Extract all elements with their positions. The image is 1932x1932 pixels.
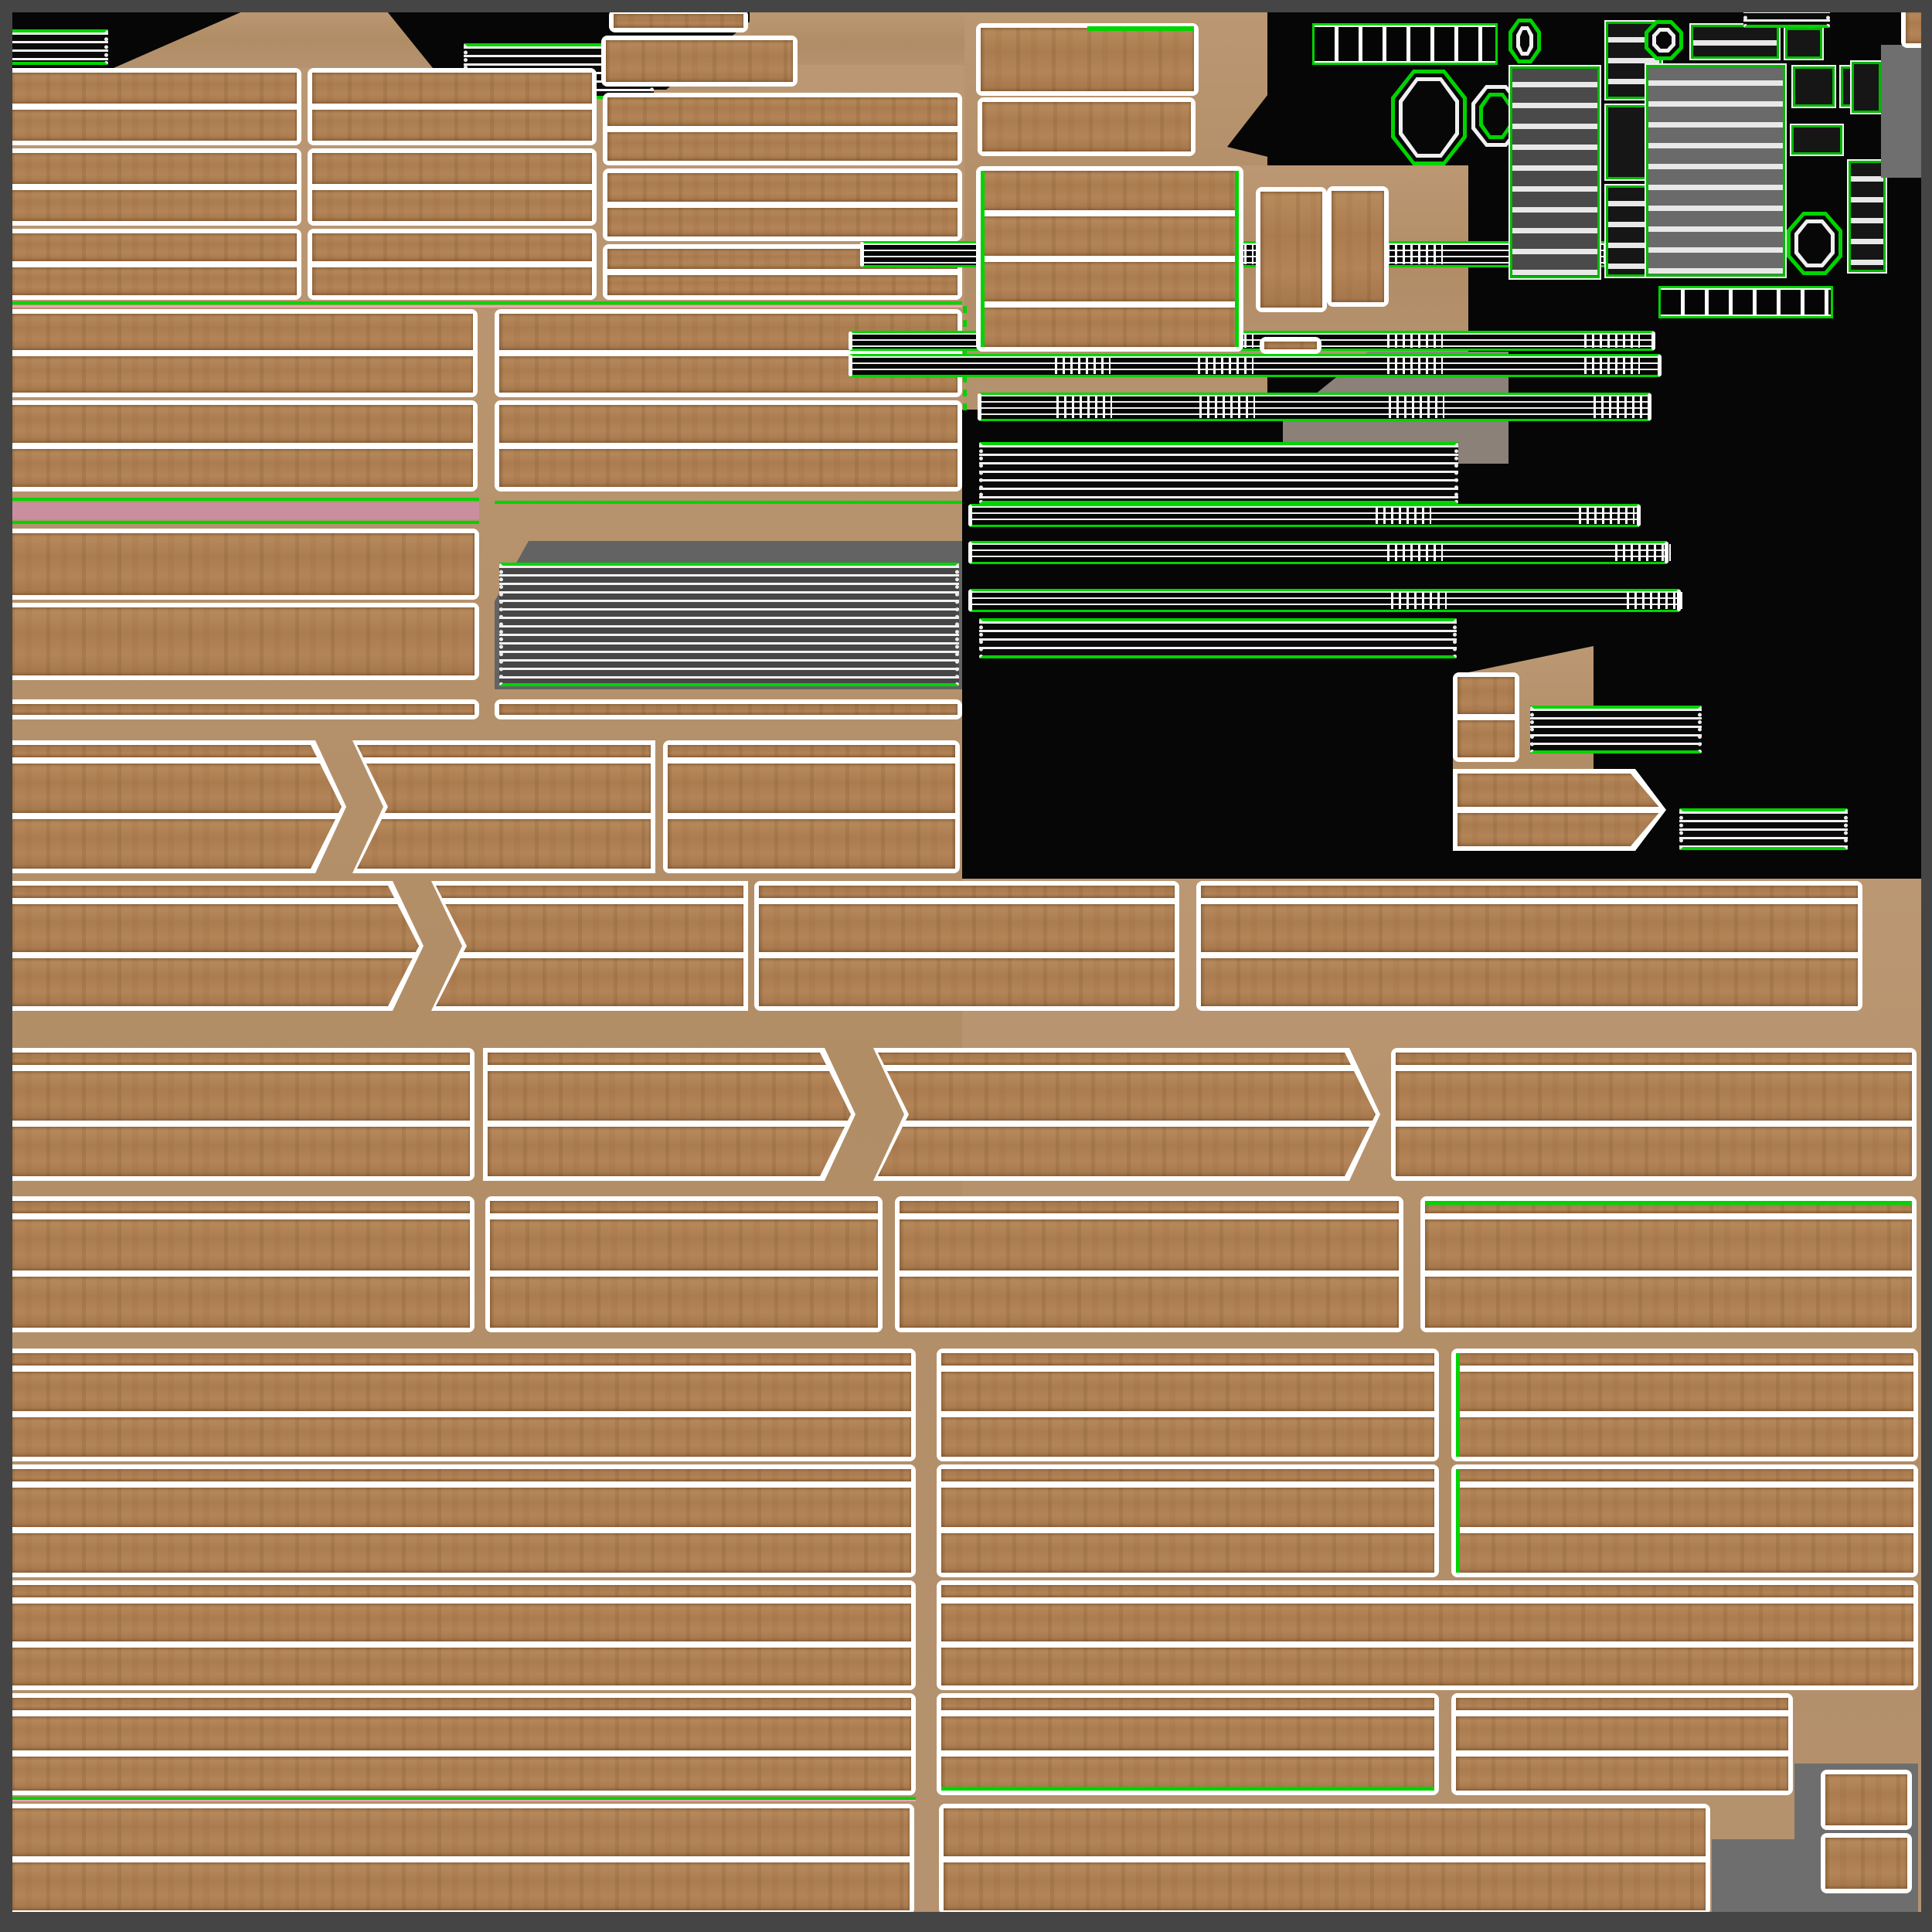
railing-bar-7-baluster-ticks <box>1391 592 1447 609</box>
plank-mid-l4 <box>6 603 479 680</box>
corner-plank-2 <box>1821 1833 1912 1893</box>
band-a-left-plank-row <box>11 1417 911 1457</box>
chevron-b1-left <box>6 740 346 873</box>
vertical-plank-2-plank-row <box>1332 191 1384 302</box>
gray-corner-b <box>1712 1839 1797 1912</box>
plank-top-small-inner <box>614 14 743 28</box>
vertical-plank-1-inner <box>1260 192 1322 308</box>
band-d-mid-edge-strip <box>941 1698 1434 1710</box>
chevron-b1-right-plank-row <box>668 764 955 813</box>
chevron-b4-far-plank-row <box>1425 1277 1912 1328</box>
band-d-left <box>6 1693 916 1795</box>
railing-bar-4-baluster-ticks <box>1056 396 1112 418</box>
band-b-right-edge-strip <box>1456 1469 1913 1481</box>
plank-col2-r2-plank-row <box>312 153 592 184</box>
chevron-b2-mid-inner <box>436 886 743 1006</box>
plank-col2-r3-plank-row <box>312 233 592 261</box>
plank-stub-1-plank-row <box>1458 720 1515 757</box>
chevron-b4-far <box>1420 1196 1917 1332</box>
plank-stub-2 <box>1453 769 1666 851</box>
band-a-mid-plank-row <box>941 1372 1434 1411</box>
plank-mid-r2-inner <box>499 405 957 487</box>
framed-plank-2-inner <box>982 102 1191 151</box>
gear-wireframe-1-ring-1 <box>1512 22 1537 60</box>
plank-stub-1-plank-row <box>1458 677 1515 714</box>
plank-col3-r1 <box>603 93 962 165</box>
railing-bar-6 <box>970 541 1667 564</box>
chevron-b2-left-plank-row <box>11 904 419 952</box>
frame-top <box>0 0 1932 12</box>
plank-stub-2-plank-row <box>1458 774 1662 807</box>
chevron-b4-right <box>895 1196 1403 1332</box>
band-c-wide-edge-strip <box>941 1585 1913 1597</box>
plank-col1-r1-plank-row <box>11 73 297 104</box>
plank-col2-r1-inner <box>312 73 592 141</box>
band-a-right-edge-strip <box>1456 1353 1913 1366</box>
plank-col3-r3-plank-row <box>607 275 957 295</box>
railing-bar-3-baluster-ticks <box>1198 357 1253 374</box>
strip-right-inner <box>499 704 957 715</box>
plank-mid-l2 <box>6 400 478 492</box>
chevron-b1-mid-plank-row <box>357 764 651 813</box>
chevron-b4-right-edge-strip <box>900 1201 1399 1213</box>
strip-right-plank-row <box>499 704 957 715</box>
chevron-b3-left-edge-strip <box>11 1053 470 1065</box>
band-e-left <box>6 1804 914 1915</box>
railing-bar-5-baluster-ticks <box>1376 507 1431 524</box>
chevron-b4-mid-plank-row <box>490 1219 878 1270</box>
plank-top-wide <box>601 36 798 87</box>
four-plank-block <box>976 166 1243 352</box>
striped-island-h <box>1679 808 1848 850</box>
framed-plank-2 <box>978 97 1196 156</box>
plank-col2-r3-inner <box>312 233 592 295</box>
plank-col1-r3-inner <box>11 233 297 295</box>
band-c-left-edge-strip <box>11 1585 911 1597</box>
plank-mid-l1-plank-row <box>11 356 473 393</box>
band-a-right-plank-row <box>1456 1372 1913 1411</box>
chevron-b4-left-plank-row <box>11 1219 470 1270</box>
chevron-b2-far <box>1196 881 1862 1011</box>
four-plank-block-plank-row <box>981 262 1239 301</box>
plank-col2-r2-inner <box>312 153 592 221</box>
plank-col3-r2-plank-row <box>607 208 957 236</box>
framed-plank-1-green-edge-topright <box>1087 26 1194 31</box>
plank-col3-r1-plank-row <box>607 132 957 161</box>
railing-bar-2-baluster-ticks <box>1584 334 1640 348</box>
chevron-b1-left-edge-strip <box>11 745 342 757</box>
gray-patch-topright <box>1881 45 1921 178</box>
chevron-b1-mid-plank-row <box>357 819 651 869</box>
chevron-b4-mid-inner <box>490 1201 878 1328</box>
small-bar-inner <box>1264 342 1317 349</box>
small-bar-plank-row <box>1264 342 1317 349</box>
plank-col1-r1-plank-row <box>11 110 297 141</box>
band-d-right-edge-strip <box>1456 1698 1788 1710</box>
plank-mid-l3-plank-row <box>11 533 474 595</box>
chevron-b3-mid <box>483 1048 855 1181</box>
band-c-left-plank-row <box>11 1604 911 1641</box>
railing-bar-4-baluster-ticks <box>1594 396 1649 418</box>
gear-wireframe-2-ring-3 <box>1656 32 1672 49</box>
chevron-b1-mid-edge-strip <box>357 745 651 757</box>
chevron-b1-right-inner <box>668 745 955 869</box>
chevron-b2-left-plank-row <box>11 958 419 1006</box>
band-c-left <box>6 1580 916 1690</box>
railing-bar-4-baluster-ticks <box>1199 396 1255 418</box>
chevron-b3-right-plank-row <box>878 1127 1376 1176</box>
band-c-wide <box>937 1580 1918 1690</box>
plank-mid-r1-inner <box>499 314 957 393</box>
railing-bar-5 <box>970 504 1639 527</box>
octagon-wireframe-large <box>1391 70 1467 165</box>
plank-col1-r1-inner <box>11 73 297 141</box>
band-a-left-inner <box>11 1353 911 1457</box>
gear-wireframe-1-ring-3 <box>1520 30 1529 52</box>
texture-atlas-canvas <box>0 0 1932 1932</box>
chevron-b2-mid-edge-strip <box>436 886 743 898</box>
chevron-b4-far-inner <box>1425 1201 1912 1328</box>
band-b-right-plank-row <box>1456 1488 1913 1527</box>
cluster-c2 <box>1790 124 1844 156</box>
band-a-left <box>6 1349 916 1461</box>
plank-mid-r1 <box>495 309 962 397</box>
chevron-b2-far-edge-strip <box>1201 886 1858 898</box>
band-b-mid-edge-strip <box>941 1469 1434 1481</box>
railing-bar-6-baluster-ticks <box>1615 544 1671 561</box>
plank-col1-r1 <box>6 68 301 145</box>
plank-col3-r2-plank-row <box>607 173 957 202</box>
plank-col3-r1-plank-row <box>607 97 957 126</box>
plank-stub-1-inner <box>1458 677 1515 757</box>
chevron-b1-right-plank-row <box>668 819 955 869</box>
gear-wireframe-1 <box>1509 19 1541 63</box>
chevron-b1-left-plank-row <box>11 764 342 813</box>
octagon-wireframe-corner-ring-2 <box>1794 219 1835 267</box>
stack-cluster-1 <box>1509 65 1601 280</box>
chevron-b2-right-plank-row <box>759 958 1175 1006</box>
striped-island-g <box>1530 706 1702 753</box>
band-a-mid-plank-row <box>941 1417 1434 1457</box>
chevron-b2-far-inner <box>1201 886 1858 1006</box>
octagon-wireframe-large-ring-1 <box>1395 73 1463 162</box>
chevron-b4-far-plank-row <box>1425 1219 1912 1270</box>
framed-plank-1-plank-row <box>981 28 1194 91</box>
band-a-right-plank-row <box>1456 1417 1913 1457</box>
chevron-b2-mid <box>431 881 748 1011</box>
chevron-b2-right <box>754 881 1179 1011</box>
band-a-right-inner <box>1456 1353 1913 1457</box>
chevron-b1-mid-inner <box>357 745 651 869</box>
ladder-wireframe-2 <box>1658 286 1833 318</box>
plank-col1-r3 <box>6 229 301 300</box>
railing-bar-3 <box>850 354 1660 377</box>
band-e-right-inner <box>944 1808 1706 1910</box>
railing-bar-4-baluster-ticks <box>1389 396 1444 418</box>
railing-bar-2 <box>850 331 1654 351</box>
chevron-b2-left-inner <box>11 886 419 1006</box>
chevron-b4-mid <box>485 1196 883 1332</box>
octagon-wireframe-large-ring-3 <box>1403 81 1455 154</box>
four-plank-block-plank-row <box>981 216 1239 256</box>
band-b-right-inner <box>1456 1469 1913 1573</box>
octagon-wireframe-small-ring-3 <box>1483 97 1509 135</box>
plank-col2-r2 <box>308 148 597 226</box>
band-b-mid-inner <box>941 1469 1434 1573</box>
chevron-b3-far-inner <box>1396 1053 1912 1176</box>
band-b-left-plank-row <box>11 1488 911 1527</box>
band-d-mid-plank-row <box>941 1757 1434 1791</box>
chevron-b4-mid-edge-strip <box>490 1201 878 1213</box>
band-d-left-inner <box>11 1698 911 1791</box>
strip-right <box>495 699 962 719</box>
chevron-b2-right-edge-strip <box>759 886 1175 898</box>
plank-top-small-plank-row <box>614 14 743 28</box>
chevron-b3-left-plank-row <box>11 1071 470 1121</box>
vertical-plank-2-inner <box>1332 191 1384 302</box>
band-a-left-plank-row <box>11 1372 911 1411</box>
chevron-b4-right-inner <box>900 1201 1399 1328</box>
band-c-wide-plank-row <box>941 1604 1913 1641</box>
chevron-b4-left <box>6 1196 474 1332</box>
plank-mid-l2-plank-row <box>11 405 473 443</box>
railing-bar-4 <box>979 393 1650 421</box>
plank-mid-l3 <box>6 529 479 600</box>
striped-island-a <box>6 29 108 65</box>
plank-top-wide-plank-row <box>606 40 793 82</box>
chevron-b4-left-inner <box>11 1201 470 1328</box>
chevron-b3-mid-plank-row <box>488 1071 851 1121</box>
green-seam <box>6 521 479 524</box>
gear-wireframe-2 <box>1645 20 1683 60</box>
strip-left-inner <box>11 704 474 715</box>
railing-bar-3-baluster-ticks <box>1387 357 1443 374</box>
frame-bottom <box>0 1912 1932 1932</box>
chevron-b3-far-plank-row <box>1396 1071 1912 1121</box>
framed-plank-1 <box>976 23 1199 96</box>
plank-col3-r1-inner <box>607 97 957 161</box>
band-e-left-inner <box>11 1808 910 1910</box>
plank-col2-r1 <box>308 68 597 145</box>
band-a-right-green-edge-left <box>1456 1353 1460 1457</box>
vertical-plank-1-plank-row <box>1260 192 1322 308</box>
band-d-mid <box>937 1693 1439 1795</box>
pink-seam <box>6 1800 916 1801</box>
band-d-mid-plank-row <box>941 1716 1434 1750</box>
plank-stub-2-plank-row <box>1458 813 1662 846</box>
framed-plank-1-inner <box>981 28 1194 91</box>
vertical-plank-2 <box>1327 186 1389 307</box>
corner-plank-1-inner <box>1825 1774 1907 1825</box>
band-a-right <box>1451 1349 1918 1461</box>
band-d-mid-inner <box>941 1698 1434 1791</box>
green-seam <box>495 501 962 504</box>
chevron-b3-right-edge-strip <box>878 1053 1376 1065</box>
band-b-right-plank-row <box>1456 1533 1913 1573</box>
chevron-b2-left <box>6 881 423 1011</box>
chevron-b4-right-plank-row <box>900 1219 1399 1270</box>
railing-bar-6-baluster-ticks <box>1387 544 1443 561</box>
four-plank-block-plank-row <box>981 171 1239 210</box>
band-e-right-plank-row <box>944 1808 1706 1856</box>
four-plank-block-green-edge-left <box>981 171 985 347</box>
band-c-wide-inner <box>941 1585 1913 1685</box>
vertical-plank-1 <box>1256 187 1327 312</box>
plank-mid-l1-plank-row <box>11 314 473 350</box>
chevron-b2-right-plank-row <box>759 904 1175 952</box>
green-seam <box>6 301 962 304</box>
corner-plank-1-plank-row <box>1825 1774 1907 1825</box>
band-d-right <box>1451 1693 1793 1795</box>
plank-mid-l2-inner <box>11 405 473 487</box>
frame-left <box>0 0 12 1932</box>
chevron-b3-left-inner <box>11 1053 470 1176</box>
plank-mid-l1 <box>6 309 478 397</box>
band-c-left-inner <box>11 1585 911 1685</box>
plank-mid-l2-plank-row <box>11 449 473 487</box>
band-b-left-inner <box>11 1469 911 1573</box>
band-e-left-plank-row <box>11 1808 910 1856</box>
railing-bar-2-baluster-ticks <box>1387 334 1443 348</box>
green-seam <box>6 498 479 501</box>
band-d-mid-green-edge-bottom <box>941 1787 1434 1791</box>
four-plank-block-plank-row <box>981 308 1239 347</box>
band-d-left-edge-strip <box>11 1698 911 1710</box>
octagon-wireframe-corner <box>1787 212 1842 275</box>
four-plank-block-inner <box>981 171 1239 347</box>
striped-island-s1 <box>979 442 1458 504</box>
octagon-wireframe-large-ring-2 <box>1399 77 1459 158</box>
gear-wireframe-2-ring-2 <box>1652 28 1675 53</box>
square-cluster <box>1784 26 1824 60</box>
band-d-left-plank-row <box>11 1757 911 1791</box>
plank-col2-r1-plank-row <box>312 73 592 104</box>
band-b-left-edge-strip <box>11 1469 911 1481</box>
gear-wireframe-2-ring-0 <box>1645 20 1683 60</box>
chevron-b4-far-green-edge-top <box>1425 1201 1912 1205</box>
railing-bar-1-baluster-ticks <box>1387 244 1443 264</box>
gray-slab-stripes <box>499 563 959 686</box>
octagon-wireframe-large-ring-0 <box>1391 70 1467 165</box>
band-d-right-inner <box>1456 1698 1788 1791</box>
plank-mid-l4-inner <box>11 607 474 675</box>
plank-col3-r2 <box>603 168 962 241</box>
gray-stack-block <box>1645 63 1787 278</box>
gear-wireframe-1-ring-0 <box>1509 19 1541 63</box>
gear-wireframe-1-ring-2 <box>1516 26 1533 56</box>
chevron-b3-right-plank-row <box>878 1071 1376 1121</box>
pink-band <box>6 502 479 519</box>
chevron-b2-mid-plank-row <box>436 958 743 1006</box>
chevron-b3-left <box>6 1048 474 1181</box>
chevron-b4-right-plank-row <box>900 1277 1399 1328</box>
corner-plank-2-plank-row <box>1825 1838 1907 1889</box>
band-e-right <box>939 1804 1710 1915</box>
chevron-b3-mid-inner <box>488 1053 851 1176</box>
chevron-b4-left-edge-strip <box>11 1201 470 1213</box>
band-b-right <box>1451 1464 1918 1577</box>
railing-bar-3-baluster-ticks <box>1055 357 1111 374</box>
band-b-mid-plank-row <box>941 1488 1434 1527</box>
octagon-wireframe-corner-ring-3 <box>1798 223 1831 264</box>
band-b-left <box>6 1464 916 1577</box>
band-a-mid-edge-strip <box>941 1353 1434 1366</box>
chevron-b2-far-plank-row <box>1201 958 1858 1006</box>
plank-mid-r2-plank-row <box>499 405 957 443</box>
band-d-left-plank-row <box>11 1716 911 1750</box>
railing-bar-5-baluster-ticks <box>1579 507 1634 524</box>
plank-col2-r2-plank-row <box>312 190 592 221</box>
octagon-wireframe-corner-ring-0 <box>1787 212 1842 275</box>
band-e-left-plank-row <box>11 1862 910 1910</box>
plank-col1-r3-plank-row <box>11 233 297 261</box>
railing-bar-7 <box>970 589 1679 612</box>
plank-mid-r2-plank-row <box>499 449 957 487</box>
plank-col1-r2-plank-row <box>11 190 297 221</box>
chevron-b1-right-edge-strip <box>668 745 955 757</box>
band-b-mid-plank-row <box>941 1533 1434 1573</box>
chevron-b1-right <box>663 740 960 873</box>
octagon-wireframe-corner-ring-1 <box>1791 216 1838 271</box>
band-a-mid <box>937 1349 1439 1461</box>
cluster-b1 <box>1791 65 1836 108</box>
chevron-b3-far <box>1391 1048 1917 1181</box>
chevron-b3-mid-plank-row <box>488 1127 851 1176</box>
plank-col1-r2 <box>6 148 301 226</box>
gear-wireframe-2-ring-1 <box>1648 24 1679 56</box>
band-a-mid-inner <box>941 1353 1434 1457</box>
strip-left-plank-row <box>11 704 474 715</box>
chevron-b3-far-edge-strip <box>1396 1053 1912 1065</box>
band-a-left-edge-strip <box>11 1353 911 1366</box>
plank-stub-2-inner <box>1458 774 1662 846</box>
corner-plank-1 <box>1821 1770 1912 1830</box>
plank-stub-1 <box>1453 672 1519 762</box>
striped-rect-cluster <box>1689 23 1781 60</box>
plank-col1-r2-inner <box>11 153 297 221</box>
plank-col2-r3-plank-row <box>312 267 592 295</box>
plank-mid-l4-plank-row <box>11 607 474 675</box>
chevron-b2-far-plank-row <box>1201 904 1858 952</box>
striped-island-s2 <box>979 618 1457 658</box>
plank-mid-r2 <box>495 400 962 492</box>
band-b-mid <box>937 1464 1439 1577</box>
plank-col1-r3-plank-row <box>11 267 297 295</box>
chevron-b3-left-plank-row <box>11 1127 470 1176</box>
frame-right <box>1921 0 1932 1932</box>
band-c-wide-plank-row <box>941 1648 1913 1685</box>
plank-col2-r1-plank-row <box>312 110 592 141</box>
chevron-b2-mid-plank-row <box>436 904 743 952</box>
ladder-wireframe-1 <box>1312 23 1498 65</box>
band-d-right-plank-row <box>1456 1757 1788 1791</box>
plank-mid-l3-inner <box>11 533 474 595</box>
plank-top-small <box>609 9 748 32</box>
railing-bar-3-baluster-ticks <box>1584 357 1640 374</box>
chevron-b4-left-plank-row <box>11 1277 470 1328</box>
chevron-b2-left-edge-strip <box>11 886 419 898</box>
corner-plank-2-inner <box>1825 1838 1907 1889</box>
plank-top-wide-inner <box>606 40 793 82</box>
plank-mid-l1-inner <box>11 314 473 393</box>
chevron-b4-mid-plank-row <box>490 1277 878 1328</box>
chevron-b3-right <box>873 1048 1380 1181</box>
pink-seam <box>6 305 962 308</box>
band-b-left-plank-row <box>11 1533 911 1573</box>
chevron-b1-left-plank-row <box>11 819 342 869</box>
chevron-b3-far-plank-row <box>1396 1127 1912 1176</box>
railing-bar-7-baluster-ticks <box>1627 592 1682 609</box>
